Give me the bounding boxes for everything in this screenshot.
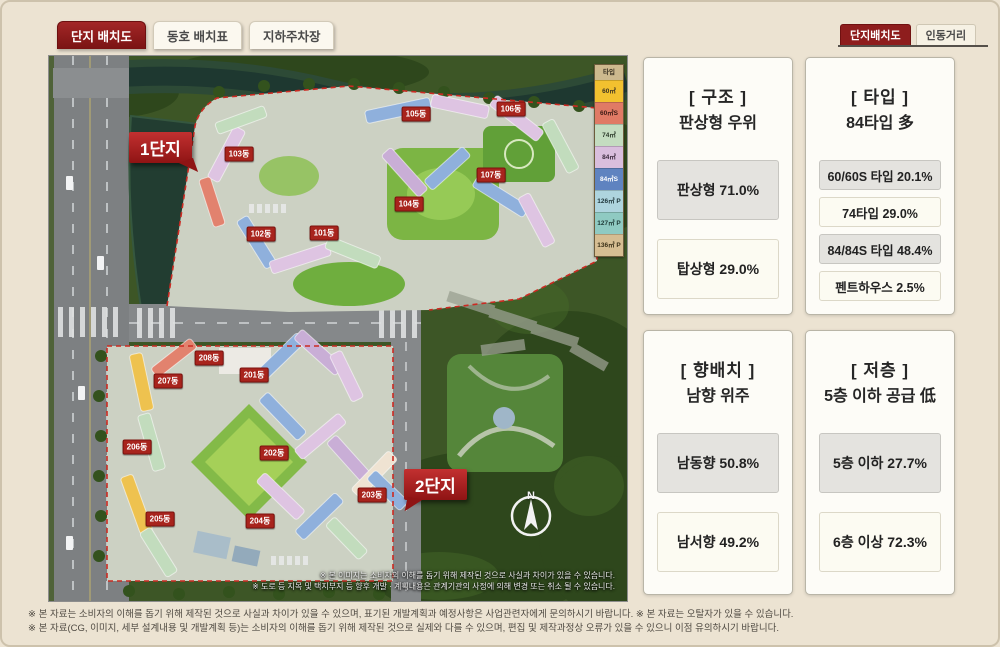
- building-tag: 202동: [260, 446, 289, 461]
- map-disclaimer-line1: ※ 본 이미지는 소비자의 이해를 돕기 위해 제작된 것으로 사실과 차이가 …: [252, 570, 615, 581]
- panel-title: [ 타입 ]: [806, 88, 954, 108]
- stat-box: 탑상형 29.0%: [657, 239, 779, 299]
- legend-item: 60㎡S: [595, 102, 623, 124]
- legend-item: 127㎡ P: [595, 212, 623, 234]
- building-tag: 207동: [154, 374, 183, 389]
- building-tag: 104동: [395, 197, 424, 212]
- legend-item: 84㎡S: [595, 168, 623, 190]
- panel-title: [ 구조 ]: [644, 88, 792, 108]
- footnote-line: ※ 본 자료(CG, 이미지, 세부 설계내용 및 개발계획 등)는 소비자의 …: [28, 622, 793, 636]
- view-tab-bar: 단지배치도인동거리: [838, 24, 988, 45]
- map-disclaimer-line2: ※ 도로 등 지목 및 택지부지 등 향후 개발 · 계획내용은 관계기관의 사…: [252, 581, 615, 592]
- building-tag: 105동: [402, 107, 431, 122]
- stat-box: 60/60S 타입 20.1%: [819, 160, 941, 190]
- building-tag: 102동: [247, 227, 276, 242]
- panel-subtitle: 판상형 우위: [644, 114, 792, 134]
- building-tag: 101동: [310, 226, 339, 241]
- stat-box: 남서향 49.2%: [657, 512, 779, 572]
- legend-item: 126㎡ P: [595, 190, 623, 212]
- stats-panels: [ 구조 ]판상형 우위판상형 71.0%탑상형 29.0%[ 타입 ]84타입…: [643, 57, 955, 595]
- building-tag: 206동: [123, 440, 152, 455]
- info-panel-4: [ 저층 ]5층 이하 공급 低5층 이하 27.7%6층 이상 72.3%: [805, 330, 955, 595]
- building-tag: 107동: [477, 168, 506, 183]
- main-tab-2[interactable]: 동호 배치표: [153, 21, 242, 49]
- panel-title: [ 저층 ]: [806, 361, 954, 381]
- main-tab-3[interactable]: 지하주차장: [249, 21, 335, 49]
- legend-item: 136㎡ P: [595, 234, 623, 256]
- stat-box: 펜트하우스 2.5%: [819, 271, 941, 301]
- footnotes: ※ 본 자료는 소비자의 이해를 돕기 위해 제작된 것으로 사실과 차이가 있…: [28, 608, 793, 636]
- district-1-label: 1단지: [129, 132, 192, 163]
- main-tab-bar: 단지 배치도동호 배치표지하주차장: [57, 21, 334, 49]
- park: [447, 354, 563, 472]
- building-tag: 208동: [195, 351, 224, 366]
- building-tag: 205동: [146, 512, 175, 527]
- stat-box: 5층 이하 27.7%: [819, 433, 941, 493]
- main-tab-1[interactable]: 단지 배치도: [57, 21, 146, 49]
- compass-icon: N: [501, 490, 561, 502]
- info-panel-3: [ 향배치 ]남향 위주남동향 50.8%남서향 49.2%: [643, 330, 793, 595]
- footnote-line: ※ 본 자료는 소비자의 이해를 돕기 위해 제작된 것으로 사실과 차이가 있…: [28, 608, 793, 622]
- panel-title: [ 향배치 ]: [644, 361, 792, 381]
- map-disclaimer: ※ 본 이미지는 소비자의 이해를 돕기 위해 제작된 것으로 사실과 차이가 …: [252, 570, 615, 592]
- building-tag: 204동: [246, 514, 275, 529]
- panel-subtitle: 84타입 多: [806, 114, 954, 134]
- stat-box: 84/84S 타입 48.4%: [819, 234, 941, 264]
- stat-box: 남동향 50.8%: [657, 433, 779, 493]
- stat-box: 판상형 71.0%: [657, 160, 779, 220]
- stat-box: 74타입 29.0%: [819, 197, 941, 227]
- stat-box: 6층 이상 72.3%: [819, 512, 941, 572]
- building-tag: 203동: [358, 488, 387, 503]
- info-panel-2: [ 타입 ]84타입 多60/60S 타입 20.1%74타입 29.0%84/…: [805, 57, 955, 315]
- view-tab-strip: 단지배치도인동거리: [838, 24, 988, 47]
- building-tag: 106동: [497, 102, 526, 117]
- site-plan-map: 타입60㎡60㎡S74㎡84㎡84㎡S126㎡ P127㎡ P136㎡ P 10…: [48, 55, 628, 602]
- info-panel-1: [ 구조 ]판상형 우위판상형 71.0%탑상형 29.0%: [643, 57, 793, 315]
- building-tag: 201동: [240, 368, 269, 383]
- view-tab-1[interactable]: 단지배치도: [840, 24, 911, 45]
- district-2-label: 2단지: [404, 469, 467, 500]
- legend-header: 타입: [595, 65, 623, 80]
- panel-subtitle: 5층 이하 공급 低: [806, 387, 954, 407]
- view-tab-2[interactable]: 인동거리: [916, 24, 976, 45]
- legend-item: 60㎡: [595, 80, 623, 102]
- panel-subtitle: 남향 위주: [644, 387, 792, 407]
- building-tag: 103동: [225, 147, 254, 162]
- legend-item: 84㎡: [595, 146, 623, 168]
- label-pointer: [405, 497, 423, 515]
- type-legend: 타입60㎡60㎡S74㎡84㎡84㎡S126㎡ P127㎡ P136㎡ P: [594, 64, 624, 257]
- legend-item: 74㎡: [595, 124, 623, 146]
